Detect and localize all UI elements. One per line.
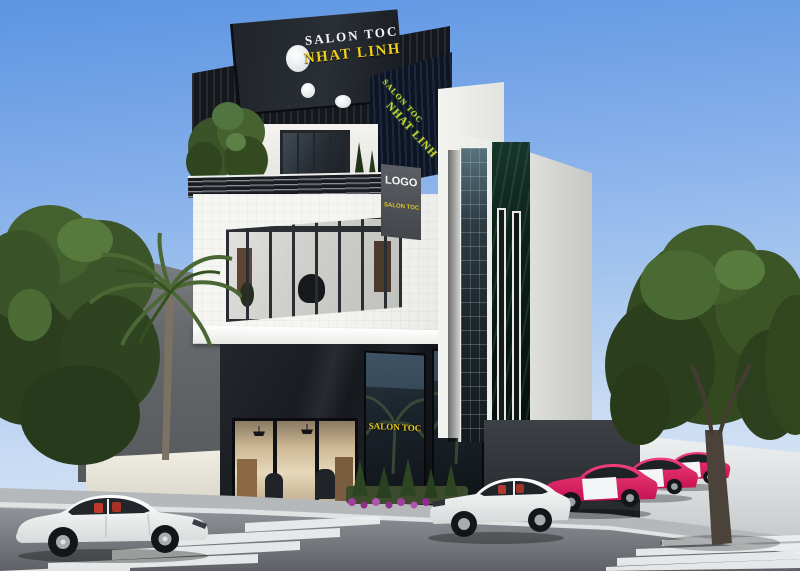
tree-trunk <box>705 430 732 545</box>
leafy-tree <box>0 205 160 465</box>
red-seat <box>94 503 103 513</box>
red-seat <box>112 502 121 512</box>
left-trees <box>0 185 242 485</box>
white-sedan-center <box>424 458 572 548</box>
red-seat <box>516 484 524 493</box>
tree-canopy <box>605 225 800 445</box>
white-sedan-left <box>8 478 213 566</box>
right-trees <box>600 225 800 555</box>
red-seat <box>498 485 506 494</box>
architectural-rendering: SALON TOC NHAT LINH SALON TOC NHAT LINH <box>0 0 800 571</box>
palm-trunk <box>162 290 174 460</box>
